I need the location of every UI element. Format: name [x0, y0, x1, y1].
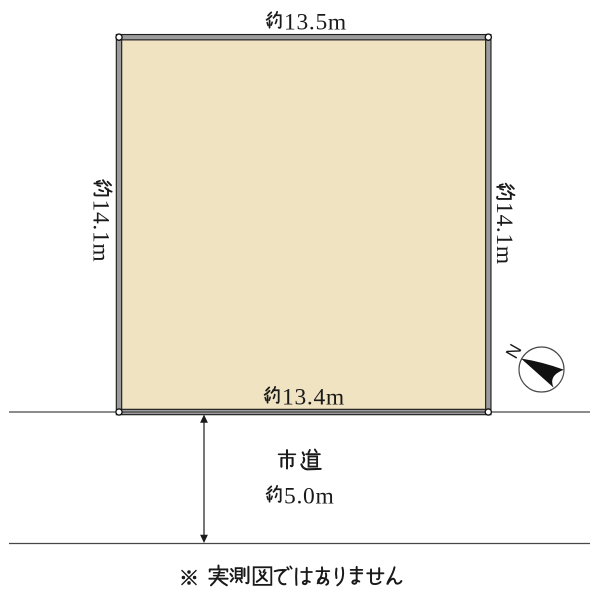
svg-text:13.5m: 13.5m	[284, 10, 347, 36]
svg-text:14.1m: 14.1m	[491, 202, 517, 265]
svg-text:5.0m: 5.0m	[284, 484, 334, 510]
svg-text:13.4m: 13.4m	[282, 385, 345, 411]
svg-text:14.1m: 14.1m	[88, 200, 114, 263]
